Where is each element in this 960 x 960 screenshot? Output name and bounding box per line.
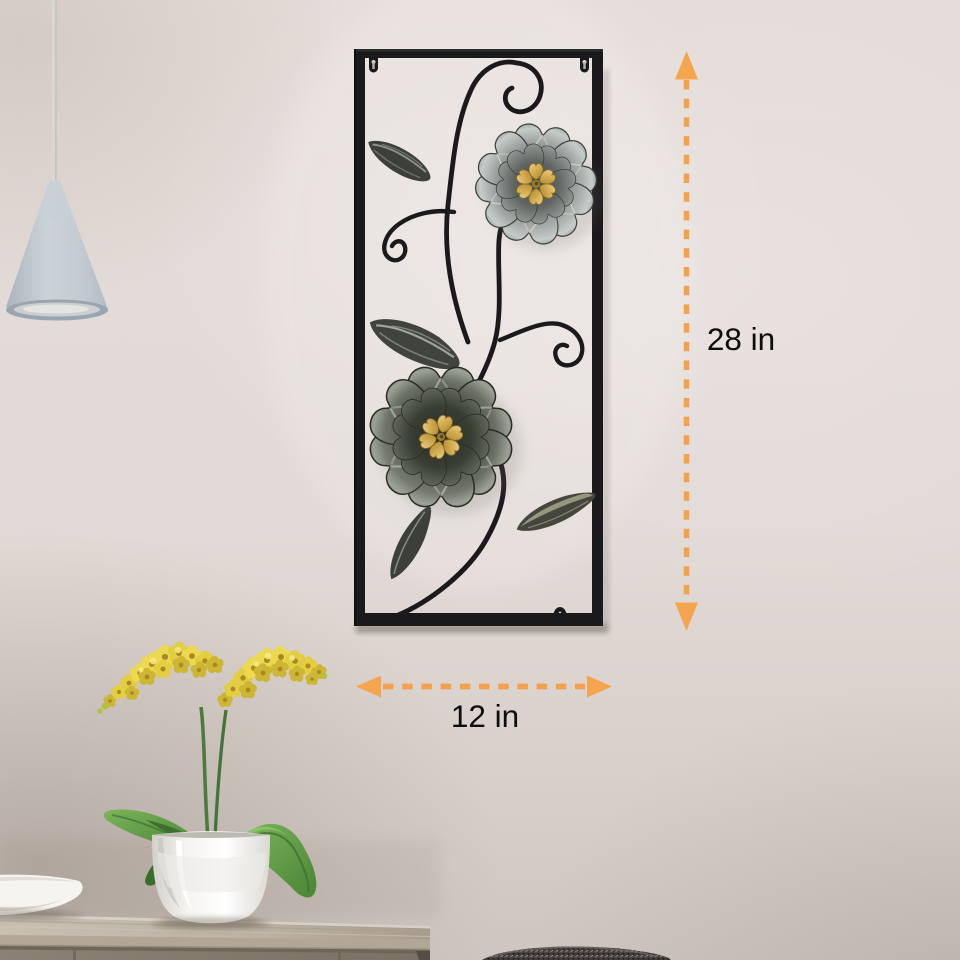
svg-text:28 in: 28 in (707, 321, 775, 357)
svg-text:12 in: 12 in (451, 698, 519, 734)
